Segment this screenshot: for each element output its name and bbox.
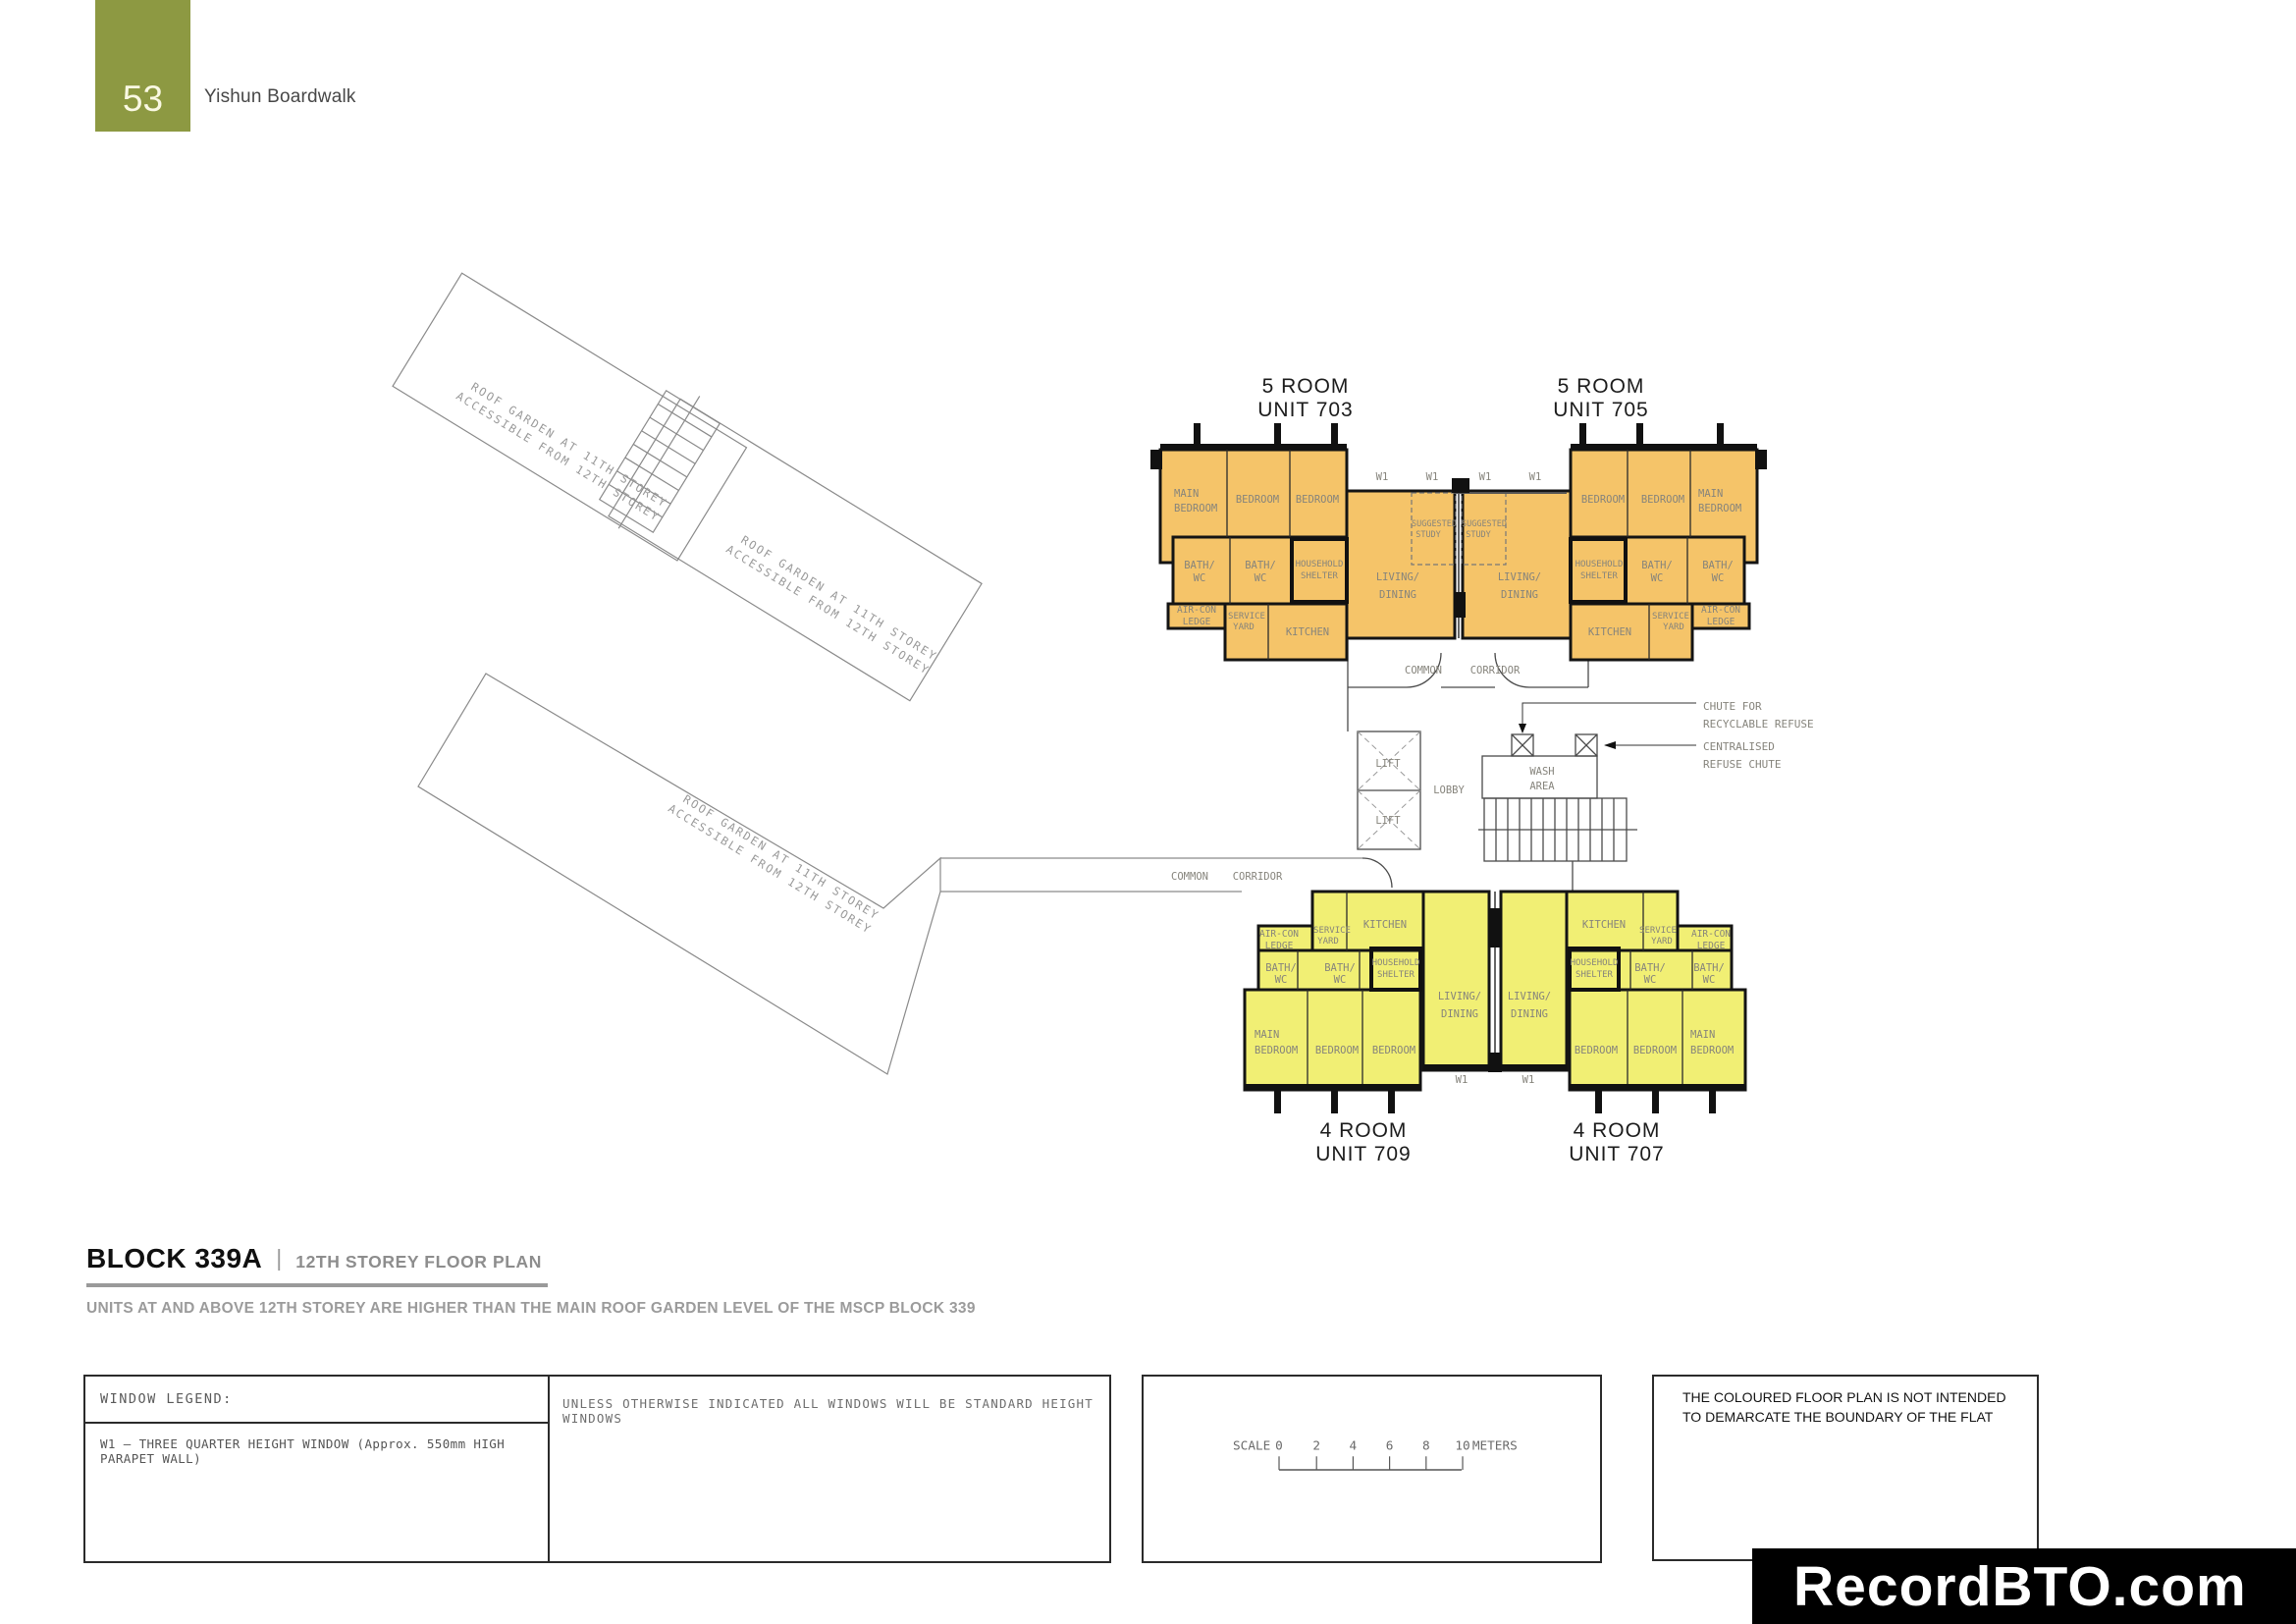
- roof-garden-note: ROOF GARDEN AT 11TH STOREYACCESSIBLE FRO…: [454, 375, 670, 523]
- window-legend-cell: WINDOW LEGEND: W1 – THREE QUARTER HEIGHT…: [85, 1377, 550, 1561]
- roof-garden-note: ROOF GARDEN AT 11TH STOREYACCESSIBLE FRO…: [666, 787, 882, 936]
- room-label: HOUSEHOLD: [1571, 958, 1619, 968]
- brochure-page: 53 Yishun Boardwalk: [0, 0, 2296, 1624]
- room-label: HOUSEHOLD: [1372, 958, 1420, 968]
- room-label: LEDGE: [1265, 941, 1294, 951]
- room-label: CORRIDOR: [1233, 871, 1283, 883]
- room-label: WC: [1651, 572, 1664, 584]
- room-label: COMMON: [1171, 871, 1208, 883]
- room-label: W1: [1376, 471, 1389, 483]
- scale-tick-label: 10: [1455, 1437, 1469, 1452]
- room-label: BEDROOM: [1255, 1045, 1298, 1056]
- room-label: YARD: [1663, 623, 1684, 632]
- room-label: LIVING/: [1376, 571, 1419, 583]
- room-label: BEDROOM: [1296, 494, 1339, 506]
- room-label: SHELTER: [1575, 970, 1614, 980]
- room-label: BEDROOM: [1690, 1045, 1734, 1056]
- scale-box: SCALE 0246810 METERS: [1142, 1375, 1602, 1563]
- recyclable-chute-icon: [1512, 734, 1533, 756]
- room-label: YARD: [1651, 937, 1673, 947]
- room-label: MAIN: [1690, 1029, 1715, 1041]
- room-label: W1: [1456, 1074, 1468, 1086]
- room-label: WC: [1255, 572, 1267, 584]
- room-label: DINING: [1511, 1008, 1548, 1020]
- room-label: YARD: [1233, 623, 1255, 632]
- room-label: MAIN: [1174, 488, 1199, 500]
- leader-arrow-down: [1519, 724, 1526, 733]
- room-label: BEDROOM: [1581, 494, 1625, 506]
- unit-title: 4 ROOM: [1320, 1119, 1408, 1142]
- room-label: LIVING/: [1508, 991, 1551, 1002]
- room-label: W1: [1529, 471, 1542, 483]
- unit-title: UNIT 705: [1553, 399, 1649, 421]
- room-label: KITCHEN: [1582, 919, 1626, 931]
- room-label: AIR-CON: [1259, 929, 1299, 940]
- unit-title: 4 ROOM: [1574, 1119, 1661, 1142]
- room-label: AIR-CON: [1701, 605, 1740, 616]
- title-divider: |: [276, 1245, 282, 1271]
- room-label: KITCHEN: [1286, 626, 1329, 638]
- room-label: SHELTER: [1580, 571, 1619, 581]
- room-label: SUGGESTED: [1412, 519, 1457, 529]
- chute-leader-lines: [1522, 703, 1696, 745]
- room-label: STUDY: [1415, 530, 1441, 540]
- room-label: CENTRALISED: [1703, 740, 1775, 753]
- core-stairs-icon: [1478, 798, 1637, 861]
- unit-title: UNIT 707: [1569, 1143, 1665, 1165]
- room-label: REFUSE CHUTE: [1703, 758, 1781, 771]
- room-label: BATH/: [1693, 962, 1725, 974]
- room-label: SHELTER: [1377, 970, 1415, 980]
- room-label: DINING: [1379, 589, 1416, 601]
- window-legend-title: WINDOW LEGEND:: [85, 1377, 548, 1424]
- room-label: AIR-CON: [1691, 929, 1731, 940]
- scale-tick-label: 2: [1312, 1437, 1320, 1452]
- room-label: BEDROOM: [1641, 494, 1684, 506]
- scale-label: SCALE: [1233, 1437, 1270, 1452]
- room-label: BEDROOM: [1372, 1045, 1415, 1056]
- scale-unit-label: METERS: [1472, 1437, 1518, 1452]
- room-label: DINING: [1501, 589, 1538, 601]
- room-label: LEDGE: [1707, 617, 1735, 627]
- room-label: BEDROOM: [1698, 503, 1741, 514]
- room-label: BATH/: [1702, 560, 1734, 571]
- room-label: WC: [1194, 572, 1206, 584]
- room-label: COMMON: [1405, 665, 1442, 677]
- unit-title: UNIT 703: [1257, 399, 1354, 421]
- room-label: LEDGE: [1183, 617, 1211, 627]
- roof-garden-outline: [393, 273, 1362, 1074]
- room-label: STUDY: [1466, 530, 1491, 540]
- room-label: WC: [1334, 974, 1347, 986]
- room-label: BATH/: [1245, 560, 1276, 571]
- roof-garden-note: ROOF GARDEN AT 11TH STOREYACCESSIBLE FRO…: [723, 528, 940, 677]
- room-label: LOBBY: [1433, 785, 1465, 796]
- room-label: BATH/: [1324, 962, 1356, 974]
- room-label: BATH/: [1634, 962, 1666, 974]
- unit-title: UNIT 709: [1315, 1143, 1412, 1165]
- room-label: BEDROOM: [1315, 1045, 1359, 1056]
- room-label: BATH/: [1184, 560, 1215, 571]
- room-label: LIVING/: [1498, 571, 1541, 583]
- room-label: LIFT: [1375, 815, 1401, 827]
- room-label: HOUSEHOLD: [1296, 560, 1344, 569]
- room-label: AREA: [1529, 781, 1555, 792]
- w1-note: W1 – THREE QUARTER HEIGHT WINDOW (Approx…: [85, 1424, 548, 1466]
- leader-arrow-left: [1604, 741, 1616, 749]
- room-label: W1: [1426, 471, 1439, 483]
- block-title: BLOCK 339A: [86, 1243, 262, 1273]
- room-label: HOUSEHOLD: [1575, 560, 1624, 569]
- disclaimer-box: THE COLOURED FLOOR PLAN IS NOT INTENDED …: [1652, 1375, 2039, 1561]
- room-label: CHUTE FOR: [1703, 700, 1762, 713]
- windows-note: UNLESS OTHERWISE INDICATED ALL WINDOWS W…: [550, 1377, 1109, 1561]
- unit-title: 5 ROOM: [1262, 375, 1350, 398]
- room-label: DINING: [1441, 1008, 1478, 1020]
- scale-tick-label: 6: [1386, 1437, 1394, 1452]
- room-label: SERVICE: [1313, 926, 1351, 936]
- scale-tick-label: 4: [1350, 1437, 1358, 1452]
- room-label: LIFT: [1375, 758, 1401, 770]
- room-label: KITCHEN: [1363, 919, 1407, 931]
- room-label: SUGGESTED: [1462, 519, 1507, 529]
- scale-tick-label: 0: [1275, 1437, 1283, 1452]
- room-label: WC: [1644, 974, 1657, 986]
- room-label: LEDGE: [1697, 941, 1726, 951]
- core-outline: [1348, 640, 1637, 925]
- room-label: SERVICE: [1639, 926, 1677, 936]
- plan-title: 12TH STOREY FLOOR PLAN: [295, 1252, 542, 1272]
- room-label: BEDROOM: [1236, 494, 1279, 506]
- room-label: MAIN: [1698, 488, 1723, 500]
- room-label: BEDROOM: [1575, 1045, 1618, 1056]
- room-label: WC: [1712, 572, 1725, 584]
- room-label: MAIN: [1255, 1029, 1279, 1041]
- unit-title: 5 ROOM: [1558, 375, 1645, 398]
- room-label: W1: [1479, 471, 1492, 483]
- room-label: AIR-CON: [1177, 605, 1216, 616]
- disclaimer-line-2: TO DEMARCATE THE BOUNDARY OF THE FLAT: [1682, 1407, 2031, 1427]
- room-label: SHELTER: [1301, 571, 1339, 581]
- room-label: WC: [1703, 974, 1716, 986]
- room-label: BATH/: [1641, 560, 1673, 571]
- room-label: LIVING/: [1438, 991, 1481, 1002]
- refuse-chute-icon: [1575, 734, 1597, 756]
- room-label: SERVICE: [1228, 612, 1265, 622]
- room-label: CORRIDOR: [1470, 665, 1521, 677]
- room-label: BATH/: [1265, 962, 1297, 974]
- room-label: RECYCLABLE REFUSE: [1703, 718, 1814, 731]
- room-label: W1: [1522, 1074, 1535, 1086]
- scale-tick-label: 8: [1422, 1437, 1430, 1452]
- scale-bar: SCALE 0246810 METERS: [1144, 1377, 1600, 1561]
- room-label: WASH: [1529, 766, 1554, 778]
- disclaimer-line-1: THE COLOURED FLOOR PLAN IS NOT INTENDED: [1682, 1387, 2031, 1407]
- room-label: BEDROOM: [1174, 503, 1217, 514]
- storey-note: UNITS AT AND ABOVE 12TH STOREY ARE HIGHE…: [86, 1300, 976, 1318]
- title-block: BLOCK 339A|12TH STOREY FLOOR PLAN: [86, 1243, 548, 1287]
- window-legend-box: WINDOW LEGEND: W1 – THREE QUARTER HEIGHT…: [83, 1375, 1111, 1563]
- room-label: YARD: [1317, 937, 1339, 947]
- watermark-banner: RecordBTO.com: [1752, 1548, 2296, 1624]
- room-label: BEDROOM: [1633, 1045, 1677, 1056]
- room-label: SERVICE: [1652, 612, 1689, 622]
- room-label: KITCHEN: [1588, 626, 1631, 638]
- room-label: WC: [1275, 974, 1288, 986]
